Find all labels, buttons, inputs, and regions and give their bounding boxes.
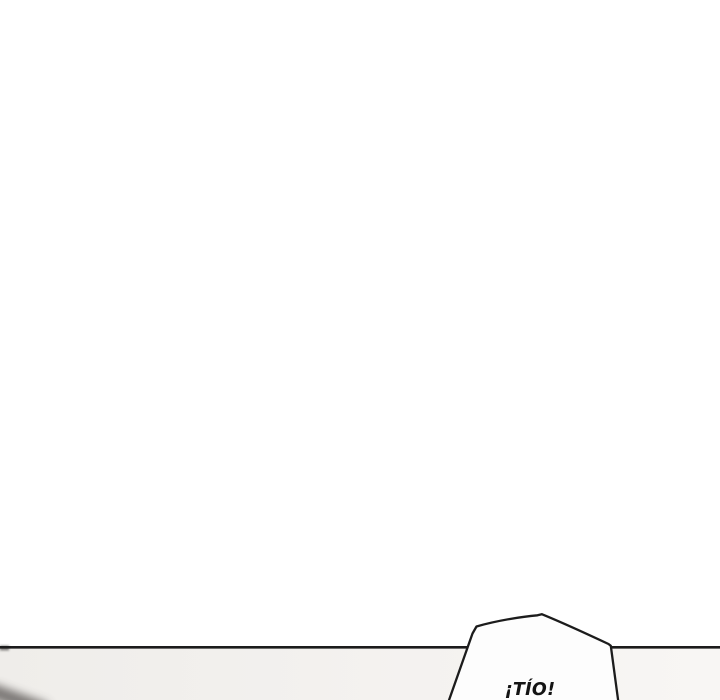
comic-page: ¡TÍO! bbox=[0, 0, 720, 700]
line-end-smudge bbox=[0, 646, 9, 651]
comic-panel-artwork: ¡TÍO! bbox=[0, 0, 720, 700]
speech-bubble-text: ¡TÍO! bbox=[505, 678, 556, 700]
blank-gutter bbox=[0, 0, 720, 646]
